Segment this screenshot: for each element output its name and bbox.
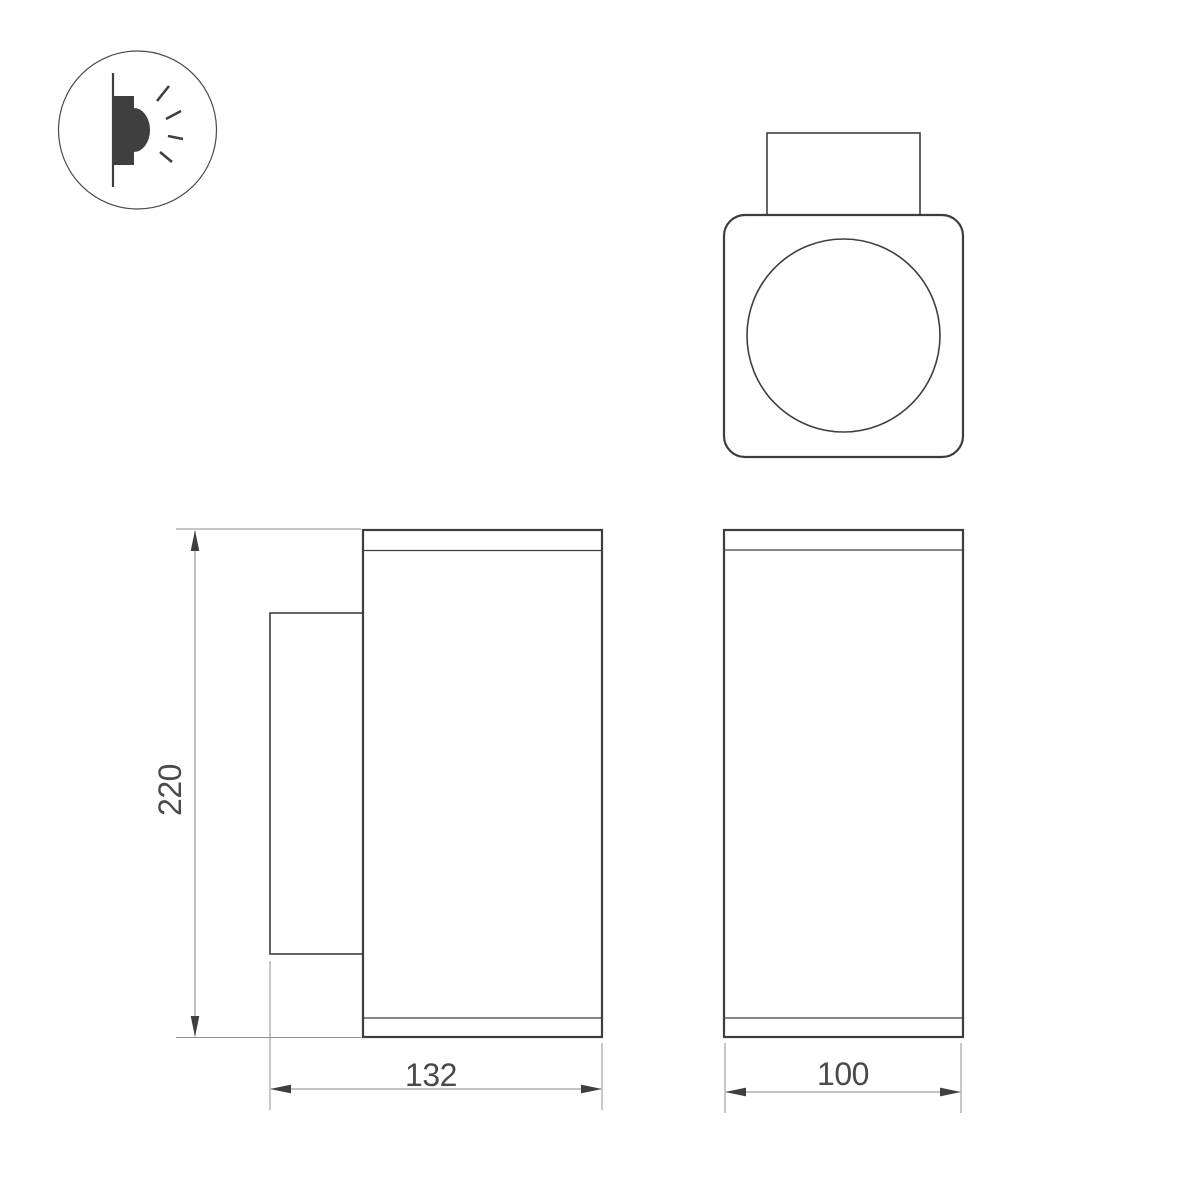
icon-light-ray [166, 111, 181, 119]
wall-light-emission-icon [59, 51, 217, 209]
front-view [724, 530, 963, 1037]
side-view [270, 530, 602, 1037]
icon-lamp-dome [134, 108, 150, 152]
depth-dimension-label: 132 [405, 1057, 457, 1093]
technical-drawing-canvas: 220 132 100 [0, 0, 1200, 1200]
height-dimension-label: 220 [152, 764, 188, 816]
width-dimension-label: 100 [817, 1056, 869, 1092]
top-view [724, 133, 963, 457]
arrowhead-left-icon [725, 1088, 746, 1097]
side-view-body-outline [363, 530, 602, 1037]
arrowhead-down-icon [191, 1016, 200, 1037]
icon-light-ray [168, 136, 183, 139]
arrowhead-right-icon [940, 1088, 961, 1097]
arrowhead-left-icon [270, 1085, 291, 1094]
icon-light-ray [157, 86, 169, 101]
top-view-mount-bracket [767, 133, 920, 216]
top-view-body-outline [724, 215, 963, 457]
side-view-mount-plate [270, 613, 363, 954]
front-view-body-outline [724, 530, 963, 1037]
dimension-width: 100 [725, 1043, 961, 1113]
icon-light-ray [160, 152, 172, 162]
arrowhead-up-icon [191, 530, 200, 551]
arrowhead-right-icon [581, 1085, 602, 1094]
icon-fixture-body [113, 96, 134, 165]
